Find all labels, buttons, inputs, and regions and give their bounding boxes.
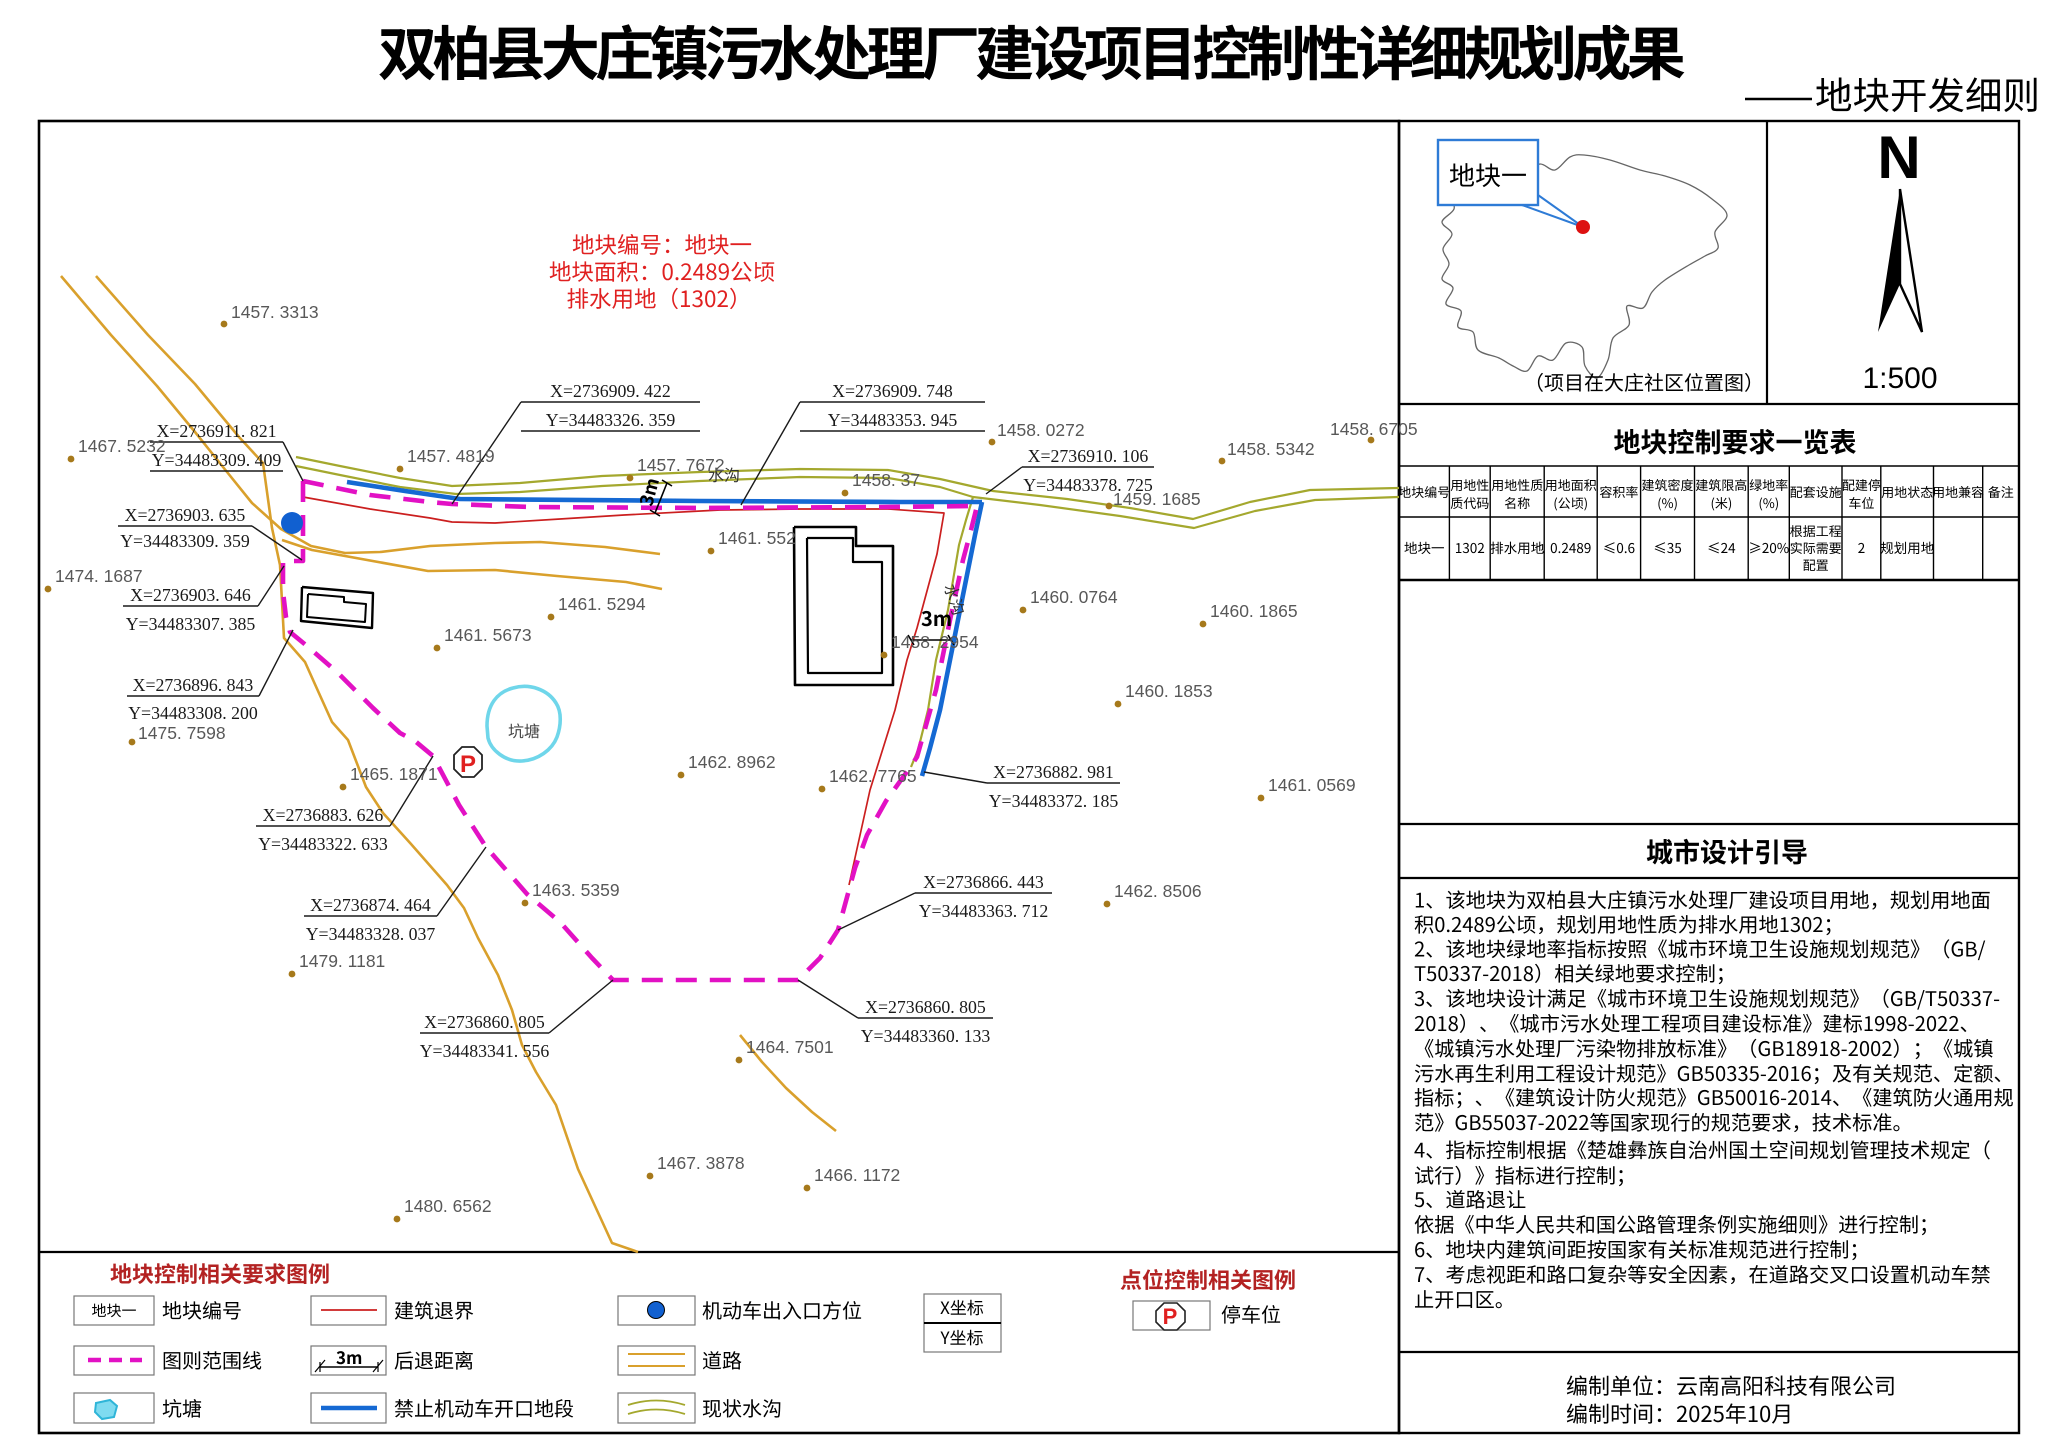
svg-text:X=2736909. 422: X=2736909. 422 bbox=[550, 381, 671, 401]
svg-text:1457. 4819: 1457. 4819 bbox=[407, 446, 495, 466]
svg-text:P: P bbox=[1163, 1304, 1178, 1329]
svg-text:X=2736903. 646: X=2736903. 646 bbox=[130, 585, 251, 605]
svg-text:1461. 0569: 1461. 0569 bbox=[1268, 775, 1356, 795]
svg-text:1462. 8506: 1462. 8506 bbox=[1114, 881, 1202, 901]
svg-text:1:500: 1:500 bbox=[1862, 362, 1937, 395]
svg-text:X=2736896. 843: X=2736896. 843 bbox=[133, 675, 254, 695]
svg-text:Y=34483353. 945: Y=34483353. 945 bbox=[828, 410, 958, 430]
svg-text:1462. 8962: 1462. 8962 bbox=[688, 752, 776, 772]
svg-text:1463. 5359: 1463. 5359 bbox=[532, 880, 620, 900]
svg-text:Y=34483322. 633: Y=34483322. 633 bbox=[258, 834, 388, 854]
svg-text:Y=34483360. 133: Y=34483360. 133 bbox=[861, 1026, 991, 1046]
svg-text:Y=34483341. 556: Y=34483341. 556 bbox=[420, 1041, 550, 1061]
svg-text:1480. 6562: 1480. 6562 bbox=[404, 1196, 492, 1216]
svg-text:X=2736903. 635: X=2736903. 635 bbox=[125, 505, 246, 525]
svg-text:1461. 552: 1461. 552 bbox=[718, 528, 796, 548]
svg-text:Y=34483372. 185: Y=34483372. 185 bbox=[989, 791, 1119, 811]
svg-text:Y=34483309. 409: Y=34483309. 409 bbox=[152, 450, 282, 470]
svg-text:1458. 0272: 1458. 0272 bbox=[997, 420, 1085, 440]
svg-text:1460. 1865: 1460. 1865 bbox=[1210, 601, 1298, 621]
svg-text:X=2736911. 821: X=2736911. 821 bbox=[156, 421, 276, 441]
svg-text:1460. 0764: 1460. 0764 bbox=[1030, 587, 1118, 607]
svg-text:1458. 2954: 1458. 2954 bbox=[891, 632, 979, 652]
svg-text:1475. 7598: 1475. 7598 bbox=[138, 723, 226, 743]
svg-text:X=2736860. 805: X=2736860. 805 bbox=[424, 1012, 545, 1032]
svg-text:1457. 3313: 1457. 3313 bbox=[231, 302, 319, 322]
svg-text:P: P bbox=[460, 751, 476, 778]
svg-text:1467. 5232: 1467. 5232 bbox=[78, 436, 166, 456]
svg-text:X=2736910. 106: X=2736910. 106 bbox=[1028, 446, 1149, 466]
svg-text:X=2736883. 626: X=2736883. 626 bbox=[263, 805, 384, 825]
svg-text:1465. 1871: 1465. 1871 bbox=[350, 764, 438, 784]
svg-text:1461. 5294: 1461. 5294 bbox=[558, 594, 646, 614]
svg-text:1474. 1687: 1474. 1687 bbox=[55, 566, 143, 586]
svg-text:1461. 5673: 1461. 5673 bbox=[444, 625, 532, 645]
svg-text:Y=34483363. 712: Y=34483363. 712 bbox=[919, 901, 1049, 921]
svg-text:X=2736882. 981: X=2736882. 981 bbox=[993, 762, 1114, 782]
svg-text:1458. 37: 1458. 37 bbox=[852, 470, 920, 490]
svg-text:Y=34483307. 385: Y=34483307. 385 bbox=[126, 614, 256, 634]
svg-text:1460. 1853: 1460. 1853 bbox=[1125, 681, 1213, 701]
svg-text:N: N bbox=[1877, 124, 1920, 191]
svg-text:X=2736860. 805: X=2736860. 805 bbox=[865, 997, 986, 1017]
svg-text:1466. 1172: 1466. 1172 bbox=[814, 1165, 900, 1185]
svg-text:1458. 6705: 1458. 6705 bbox=[1330, 419, 1418, 439]
svg-text:1457. 7672: 1457. 7672 bbox=[637, 455, 725, 475]
svg-text:Y=34483326. 359: Y=34483326. 359 bbox=[546, 410, 676, 430]
svg-text:1479. 1181: 1479. 1181 bbox=[299, 951, 385, 971]
svg-text:1459. 1685: 1459. 1685 bbox=[1113, 489, 1201, 509]
svg-text:Y=34483328. 037: Y=34483328. 037 bbox=[306, 924, 436, 944]
svg-text:X=2736874. 464: X=2736874. 464 bbox=[310, 895, 431, 915]
svg-text:1462. 7765: 1462. 7765 bbox=[829, 766, 917, 786]
svg-text:Y=34483308. 200: Y=34483308. 200 bbox=[128, 703, 258, 723]
svg-text:1458. 5342: 1458. 5342 bbox=[1227, 439, 1315, 459]
svg-text:Y=34483309. 359: Y=34483309. 359 bbox=[120, 531, 250, 551]
svg-text:1467. 3878: 1467. 3878 bbox=[657, 1153, 745, 1173]
svg-text:X=2736909. 748: X=2736909. 748 bbox=[832, 381, 953, 401]
svg-text:X=2736866. 443: X=2736866. 443 bbox=[923, 872, 1044, 892]
svg-text:1464. 7501: 1464. 7501 bbox=[746, 1037, 834, 1057]
